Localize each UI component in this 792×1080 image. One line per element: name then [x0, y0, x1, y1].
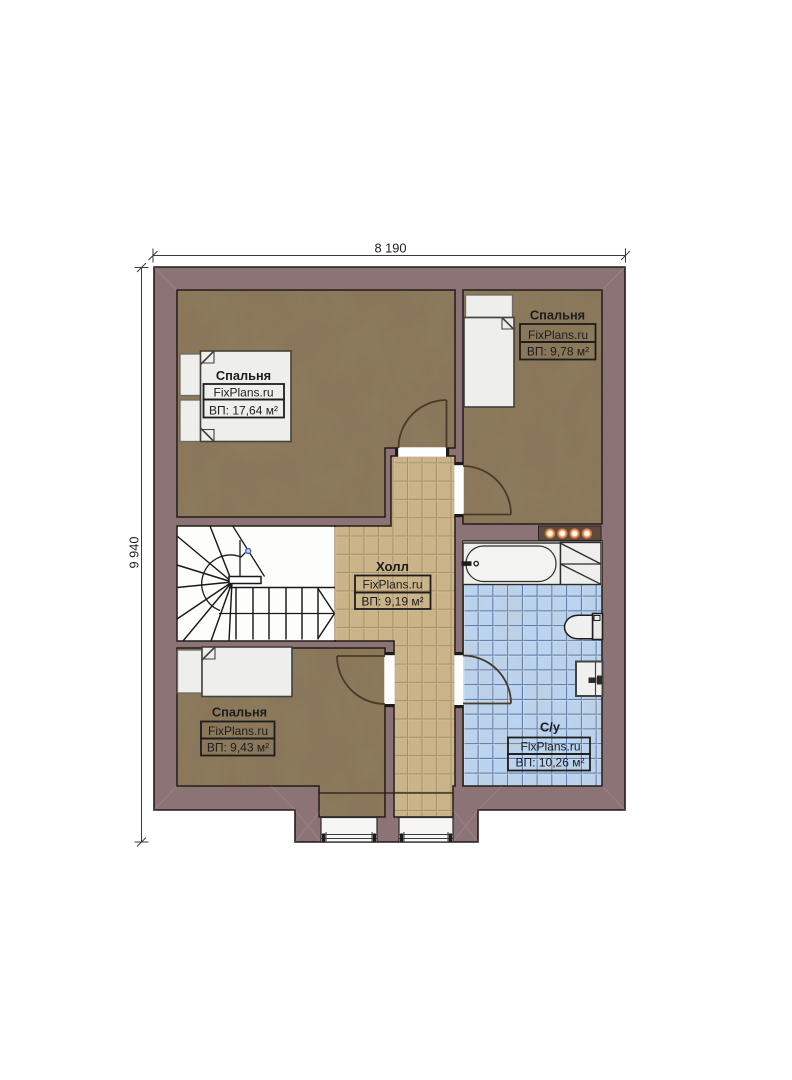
svg-text:Спальня: Спальня	[216, 368, 271, 383]
svg-text:9 940: 9 940	[127, 536, 142, 568]
svg-text:С/у: С/у	[540, 720, 561, 735]
svg-text:FixPlans.ru: FixPlans.ru	[528, 328, 588, 342]
svg-text:Холл: Холл	[376, 559, 409, 574]
svg-text:FixPlans.ru: FixPlans.ru	[213, 386, 273, 400]
svg-text:Спальня: Спальня	[530, 308, 585, 323]
svg-text:FixPlans.ru: FixPlans.ru	[362, 578, 422, 592]
svg-text:ВП: 9,78 м²: ВП: 9,78 м²	[527, 345, 589, 359]
svg-text:ВП: 17,64 м²: ВП: 17,64 м²	[209, 404, 278, 418]
svg-text:FixPlans.ru: FixPlans.ru	[520, 740, 580, 754]
svg-text:ВП: 9,43 м²: ВП: 9,43 м²	[207, 741, 269, 755]
svg-text:FixPlans.ru: FixPlans.ru	[208, 724, 268, 738]
svg-text:8 190: 8 190	[374, 241, 406, 256]
svg-text:ВП: 9,19 м²: ВП: 9,19 м²	[361, 595, 423, 609]
svg-text:Спальня: Спальня	[212, 705, 267, 720]
svg-text:ВП: 10,26 м²: ВП: 10,26 м²	[516, 756, 585, 770]
